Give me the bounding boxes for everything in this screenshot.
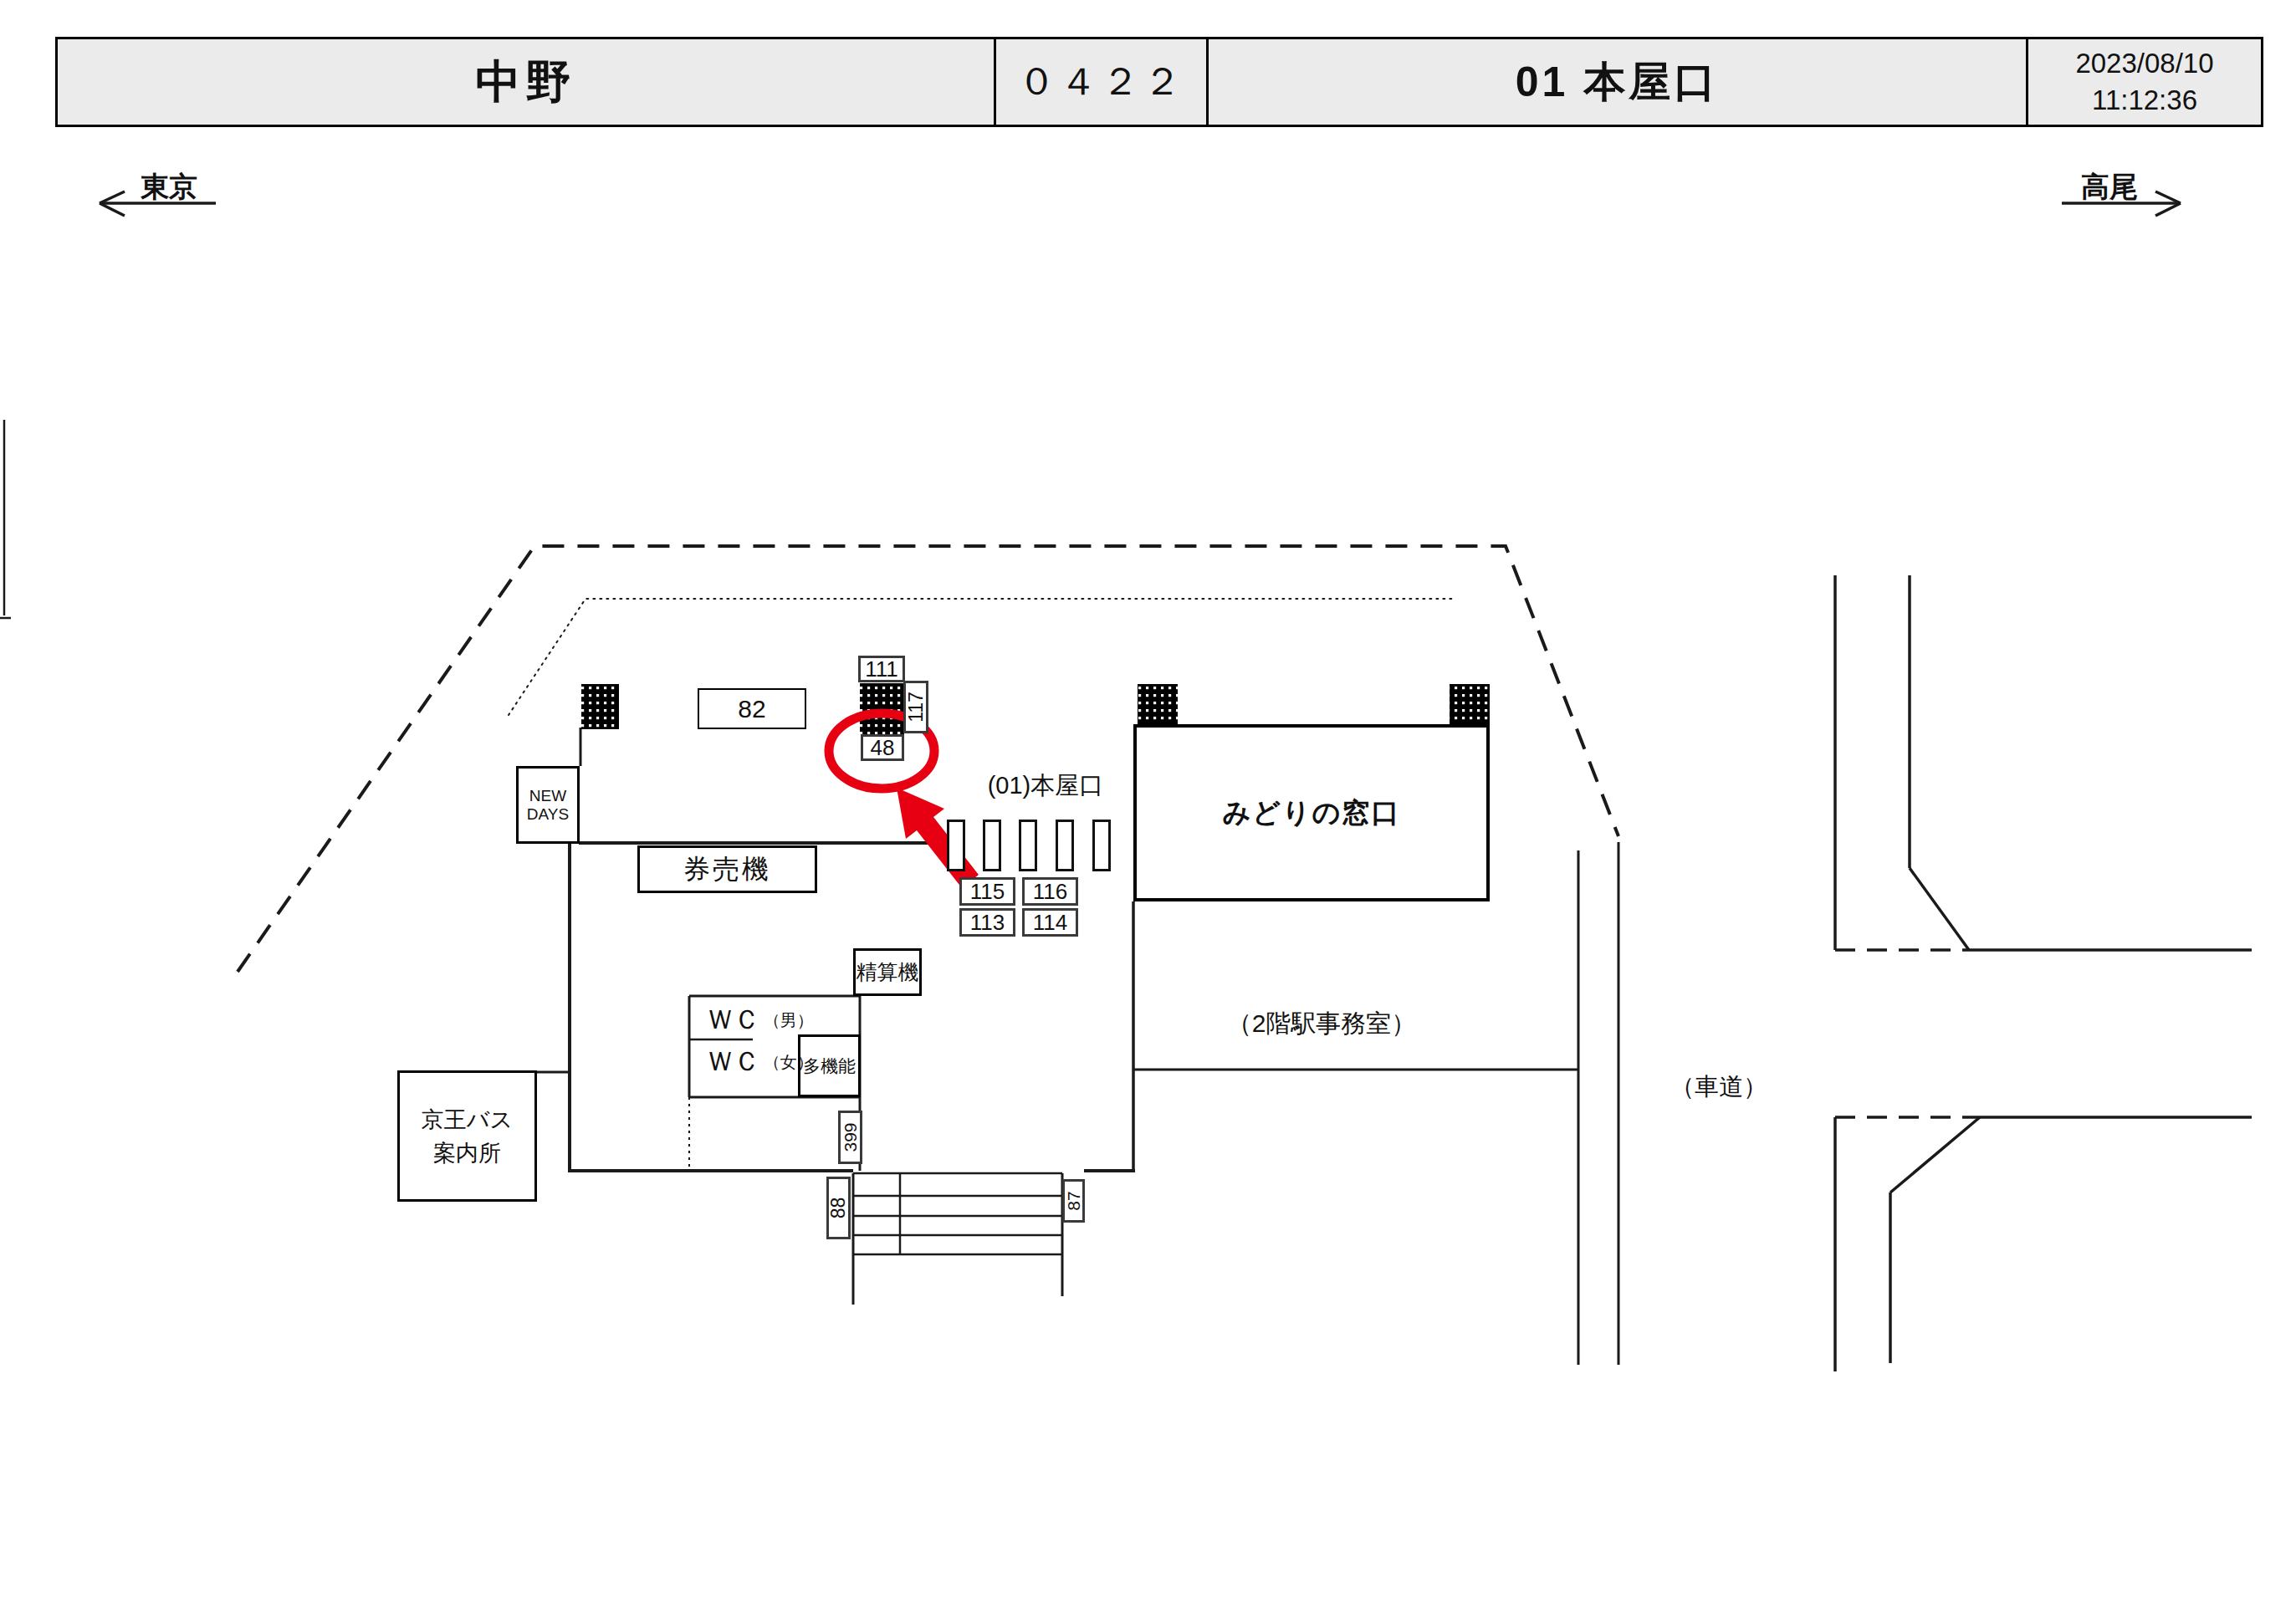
camera-box-116[interactable]: 116 [1022,877,1078,906]
street-corner-top-right [1835,575,2252,950]
pillar-icon [581,684,619,729]
direction-tokyo-arrow [100,192,216,216]
wc-women-label: ＷＣ（女） [707,1048,813,1076]
pillar-icon [860,683,904,734]
camera-box-117[interactable]: 117 [903,681,928,733]
roadway-lines [1578,842,1618,1365]
street-corner-bottom-right [1835,1117,2252,1371]
keio-bus-info-box: 京王バス 案内所 [397,1070,537,1202]
direction-takao-arrow [2062,192,2181,216]
highlight-arrow-icon [897,788,979,888]
ticket-gate [1019,820,1037,871]
ticket-gate [983,820,1001,871]
camera-box-111[interactable]: 111 [858,656,905,682]
camera-box-88[interactable]: 88 [826,1177,851,1239]
midori-no-madoguchi-box: みどりの窓口 [1133,724,1490,901]
station-office-label: （2階駅事務室） [1154,1007,1489,1040]
staircase [853,1173,1062,1305]
camera-box-82[interactable]: 82 [698,688,806,729]
camera-box-87[interactable]: 87 [1062,1179,1085,1223]
camera-box-115[interactable]: 115 [959,877,1015,906]
page-margin-marks [0,420,11,618]
wc-men-label: ＷＣ（男） [707,1006,813,1034]
gate-name-label: (01)本屋口 [970,771,1121,801]
ticket-gate [1056,820,1074,871]
inner-dotted-line [509,599,1455,715]
newdays-shop: NEW DAYS [516,766,580,844]
pillar-icon [1450,684,1490,728]
ticket-gate [1092,820,1111,871]
ticket-gate [947,820,965,871]
fare-adjustment-box: 精算機 [853,948,922,996]
roadway-label: （車道） [1664,1072,1773,1102]
ticket-machines-box: 券売機 [637,845,817,893]
camera-box-113[interactable]: 113 [959,908,1015,937]
camera-box-114[interactable]: 114 [1022,908,1078,937]
camera-box-399[interactable]: 399 [838,1111,862,1164]
camera-box-48-selected[interactable]: 48 [861,734,904,761]
pillar-icon [1138,684,1178,728]
